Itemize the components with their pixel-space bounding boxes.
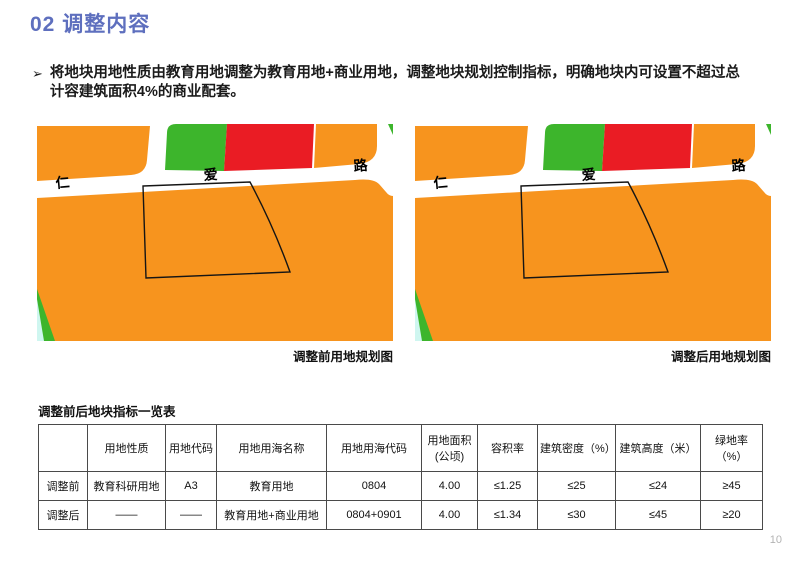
cell-green-ratio: ≥20 [701,501,763,530]
road-label-lu: 路 [731,157,747,174]
table-row-after: 调整后 —— —— 教育用地+商业用地 0804+0901 4.00 ≤1.34… [39,501,763,530]
slide: 02 调整内容 ➢ 将地块用地性质由教育用地调整为教育用地+商业用地，调整地块规… [0,0,800,566]
cell-land-nature: 教育科研用地 [88,472,166,501]
cell-green-ratio: ≥45 [701,472,763,501]
header-land-nature: 用地性质 [88,425,166,472]
header-building-density: 建筑密度（%） [538,425,616,472]
map-before: 仁 爱 路 调整前用地规划图 [37,122,393,365]
row-label: 调整前 [39,472,88,501]
header-plot-ratio: 容积率 [478,425,538,472]
header-land-code: 用地代码 [166,425,217,472]
table-title: 调整前后地块指标一览表 [38,401,762,420]
cell-land-area: 4.00 [422,501,478,530]
map-after-caption: 调整后用地规划图 [415,346,771,365]
land-use-map-after-image: 仁 爱 路 [415,122,771,341]
header-land-sea-code: 用地用海代码 [327,425,422,472]
map-before-caption: 调整前用地规划图 [37,346,393,365]
cell-building-density: ≤25 [538,472,616,501]
indicator-table: 用地性质 用地代码 用地用海名称 用地用海代码 用地面积 (公顷) 容积率 建筑… [38,424,763,530]
cell-building-height: ≤24 [616,472,701,501]
cell-land-nature: —— [88,501,166,530]
cell-land-sea-code: 0804 [327,472,422,501]
road-label-ren: 仁 [55,174,70,191]
header-building-height: 建筑高度（米） [616,425,701,472]
header-empty [39,425,88,472]
road-label-ai: 爱 [203,166,218,183]
cell-building-density: ≤30 [538,501,616,530]
row-label: 调整后 [39,501,88,530]
header-land-sea-name: 用地用海名称 [217,425,327,472]
bullet-text: 将地块用地性质由教育用地调整为教育用地+商业用地，调整地块规划控制指标，明确地块… [50,64,754,102]
table-header-row: 用地性质 用地代码 用地用海名称 用地用海代码 用地面积 (公顷) 容积率 建筑… [39,425,763,472]
road-label-lu: 路 [353,157,369,174]
cell-land-sea-code: 0804+0901 [327,501,422,530]
map-figures: 仁 爱 路 调整前用地规划图 仁 爱 路 调整后用地规划图 [37,122,771,365]
bullet-arrow-icon: ➢ [32,64,43,102]
map-after: 仁 爱 路 调整后用地规划图 [415,122,771,365]
cell-land-sea-name: 教育用地+商业用地 [217,501,327,530]
cell-plot-ratio: ≤1.34 [478,501,538,530]
cell-land-area: 4.00 [422,472,478,501]
bullet-paragraph: ➢ 将地块用地性质由教育用地调整为教育用地+商业用地，调整地块规划控制指标，明确… [32,64,754,102]
cell-plot-ratio: ≤1.25 [478,472,538,501]
page-number: 10 [770,534,782,546]
cell-building-height: ≤45 [616,501,701,530]
road-label-ren: 仁 [433,174,448,191]
cell-land-code: A3 [166,472,217,501]
header-land-area: 用地面积 (公顷) [422,425,478,472]
table-row-before: 调整前 教育科研用地 A3 教育用地 0804 4.00 ≤1.25 ≤25 ≤… [39,472,763,501]
header-green-ratio: 绿地率（%） [701,425,763,472]
cell-land-code: —— [166,501,217,530]
page-title: 02 调整内容 [30,8,150,38]
road-label-ai: 爱 [581,166,596,183]
land-use-map-before-image: 仁 爱 路 [37,122,393,341]
indicator-table-section: 调整前后地块指标一览表 用地性质 用地代码 用地用海名称 用地用海代码 用地面积… [38,401,762,530]
cell-land-sea-name: 教育用地 [217,472,327,501]
